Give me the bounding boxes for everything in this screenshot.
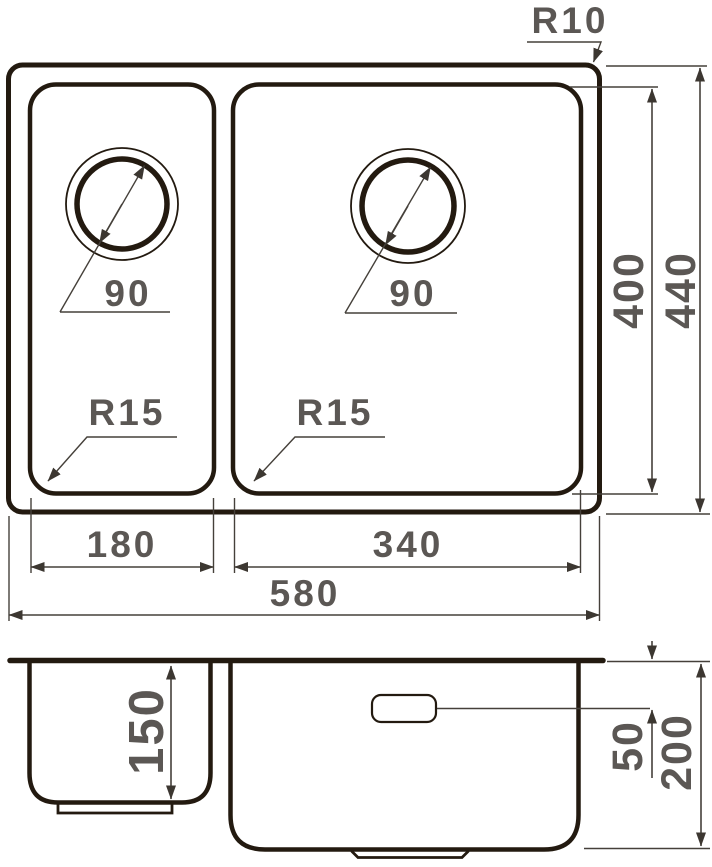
left-bowl-width-label: 180 bbox=[87, 524, 158, 565]
corner-radius-leader bbox=[527, 42, 601, 62]
dim-left-bowl-width: 180 bbox=[31, 524, 214, 567]
side-view: 150 50 200 bbox=[10, 641, 710, 858]
left-bowl-radius-leader bbox=[48, 437, 177, 481]
dim-overall-depth: 440 bbox=[657, 68, 705, 512]
dim-bowl-depth: 400 bbox=[605, 89, 653, 492]
dim-left-bowl-depth: 150 bbox=[120, 666, 174, 799]
right-drain-diameter-arrow bbox=[386, 206, 409, 245]
right-bowl-profile bbox=[231, 663, 579, 850]
top-view: 90 90 R10 R15 R15 bbox=[9, 0, 711, 621]
overflow-offset-label: 50 bbox=[604, 720, 652, 772]
right-bowl-drain-lip bbox=[352, 852, 468, 858]
right-bowl-radius-leader bbox=[254, 437, 385, 481]
left-drain-diameter-label: 90 bbox=[104, 273, 151, 314]
drawing-canvas: 90 90 R10 R15 R15 bbox=[0, 0, 712, 867]
left-bowl-drain-lip bbox=[58, 805, 172, 814]
right-bowl-width-label: 340 bbox=[373, 524, 444, 565]
left-bowl-radius-callout: R15 bbox=[48, 392, 177, 481]
bowl-depth-label: 400 bbox=[605, 251, 653, 329]
right-drain-diameter-label: 90 bbox=[389, 273, 436, 314]
dim-right-bowl-width: 340 bbox=[235, 524, 581, 567]
sink-technical-drawing: 90 90 R10 R15 R15 bbox=[0, 0, 712, 867]
corner-radius-callout: R10 bbox=[527, 0, 608, 62]
overall-width-label: 580 bbox=[270, 573, 341, 614]
overflow-hole bbox=[372, 695, 436, 722]
right-drain: 90 bbox=[345, 149, 465, 314]
dim-overall-width: 580 bbox=[9, 573, 600, 615]
right-bowl-depth-label: 200 bbox=[653, 713, 701, 791]
right-bowl-radius-callout: R15 bbox=[254, 392, 385, 481]
corner-radius-label: R10 bbox=[532, 0, 609, 41]
right-bowl-radius-label: R15 bbox=[297, 392, 374, 433]
overall-depth-label: 440 bbox=[657, 251, 705, 329]
left-bowl-depth-label: 150 bbox=[120, 687, 174, 775]
outer-rim-outline bbox=[9, 65, 600, 512]
left-drain-diameter-arrow bbox=[100, 204, 123, 243]
left-bowl-radius-label: R15 bbox=[89, 392, 166, 433]
left-drain: 90 bbox=[60, 148, 178, 314]
